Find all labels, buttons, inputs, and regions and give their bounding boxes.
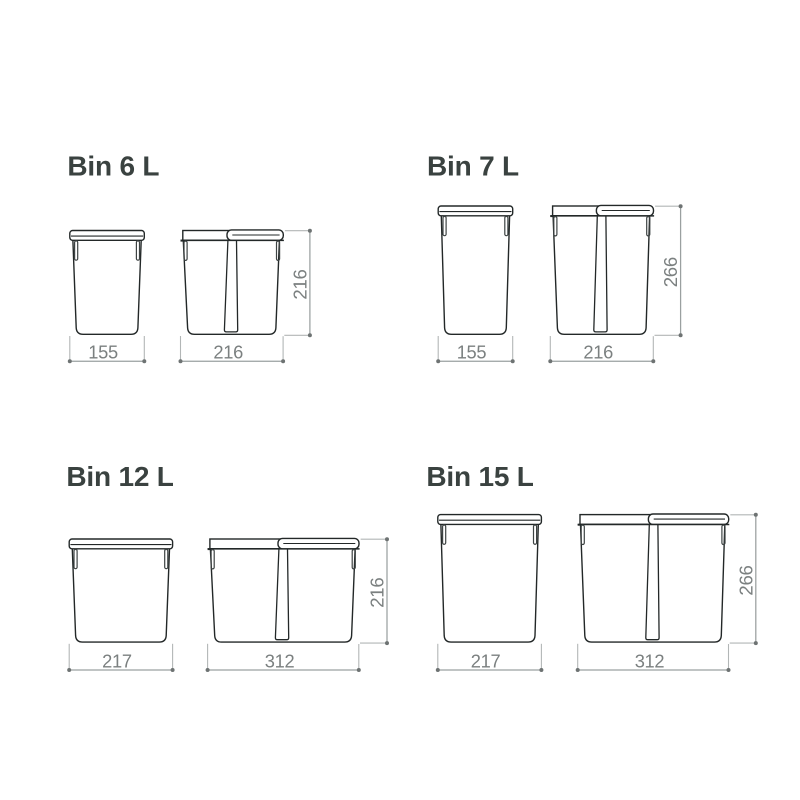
svg-text:312: 312: [635, 650, 665, 671]
svg-text:217: 217: [102, 650, 132, 671]
svg-text:155: 155: [88, 342, 118, 363]
svg-text:217: 217: [471, 650, 501, 671]
svg-text:Bin 15 L: Bin 15 L: [426, 461, 533, 492]
svg-text:266: 266: [660, 257, 681, 287]
svg-text:Bin 12 L: Bin 12 L: [66, 461, 173, 492]
svg-text:Bin 7 L: Bin 7 L: [427, 150, 519, 181]
svg-text:Bin 6 L: Bin 6 L: [67, 150, 159, 181]
svg-text:216: 216: [367, 578, 388, 608]
svg-text:312: 312: [265, 650, 295, 671]
svg-text:266: 266: [735, 565, 756, 595]
svg-text:216: 216: [213, 342, 243, 363]
svg-text:155: 155: [457, 342, 487, 363]
svg-text:216: 216: [289, 269, 310, 299]
svg-text:216: 216: [583, 342, 613, 363]
